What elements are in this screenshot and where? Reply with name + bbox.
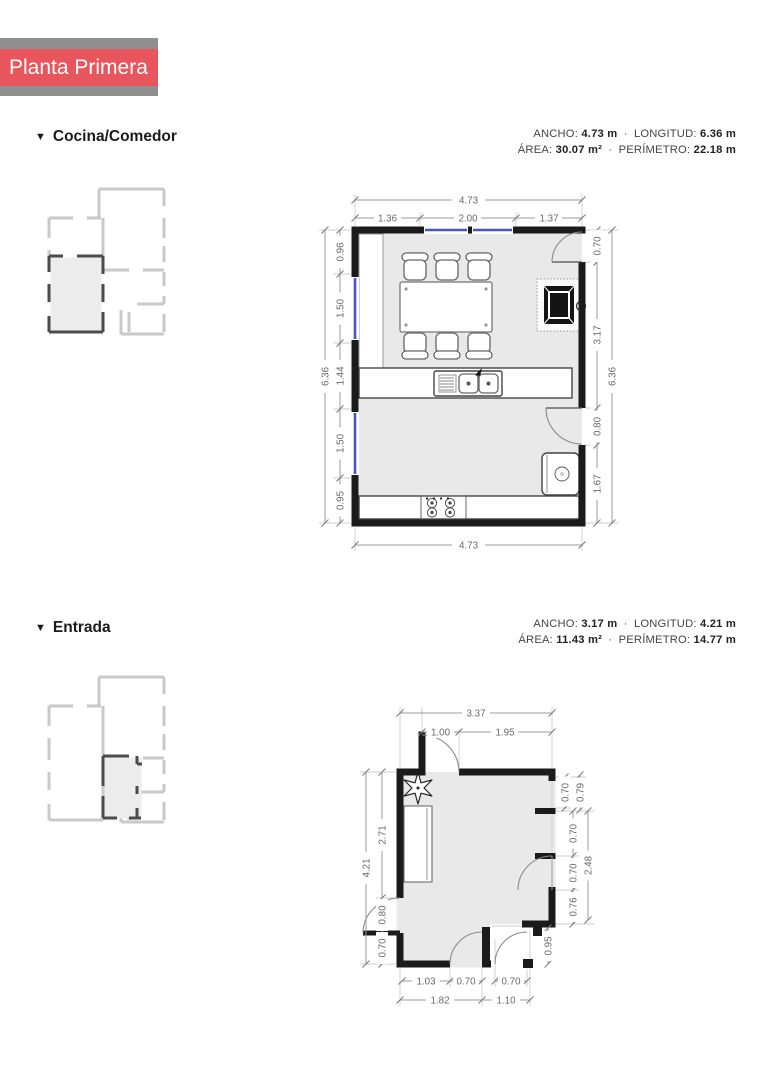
banner-top-edge xyxy=(0,38,158,49)
floor-plan-page: Planta Primera ▼Cocina/Comedor ANCHO: 4.… xyxy=(0,0,762,1080)
dim-label: 0.76 xyxy=(569,897,580,917)
dim-label: 3.17 xyxy=(593,325,604,344)
dim-label: 0.95 xyxy=(544,936,555,956)
dot-separator: · xyxy=(624,618,628,630)
room-stats-cocina: ANCHO: 4.73 m · LONGITUD: 6.36 m ÁREA: 3… xyxy=(518,127,736,158)
dim-label: 1.50 xyxy=(336,298,347,318)
left-counter xyxy=(359,234,383,368)
dot-separator: · xyxy=(608,144,612,156)
fireplace-stove xyxy=(537,279,586,331)
area-label: ÁREA: xyxy=(518,144,553,156)
door-bottom-right xyxy=(495,932,533,968)
dim-label: 0.70 xyxy=(569,863,580,883)
cocina-floor-plan: 4.73 1.36 2.00 1.37 6.36 0.96 1.50 1.44 … xyxy=(318,185,628,565)
overview-thumbnail-cocina xyxy=(33,180,173,350)
longitud-value: 6.36 m xyxy=(700,128,736,140)
dim-label: 4.21 xyxy=(362,858,373,877)
dim-label: 1.44 xyxy=(336,366,347,386)
perimetro-label: PERÍMETRO: xyxy=(619,144,691,156)
ancho-label: ANCHO: xyxy=(533,618,578,630)
area-value: 11.43 m² xyxy=(556,634,602,646)
dim-label: 0.79 xyxy=(576,783,587,802)
perimetro-label: PERÍMETRO: xyxy=(619,634,691,646)
dim-label: 0.70 xyxy=(593,236,604,256)
ancho-value: 3.17 m xyxy=(581,618,617,630)
section-header-cocina[interactable]: ▼Cocina/Comedor xyxy=(35,128,177,146)
dim-label: 1.36 xyxy=(378,214,398,225)
floor-banner: Planta Primera xyxy=(0,38,158,96)
dot-separator: · xyxy=(608,634,612,646)
collapse-triangle-icon[interactable]: ▼ xyxy=(35,622,46,634)
section-title-cocina: Cocina/Comedor xyxy=(53,128,177,145)
dim-label: 1.95 xyxy=(495,728,515,739)
longitud-value: 4.21 m xyxy=(700,618,736,630)
dim-label: 1.00 xyxy=(431,728,451,739)
room-stats-entrada: ANCHO: 3.17 m · LONGITUD: 4.21 m ÁREA: 1… xyxy=(518,617,736,648)
banner-title: Planta Primera xyxy=(0,49,158,86)
dim-label: 0.70 xyxy=(561,782,572,802)
stats-line-2: ÁREA: 30.07 m² · PERÍMETRO: 22.18 m xyxy=(518,143,736,159)
thumb-highlight-room-fill xyxy=(51,258,102,331)
closet xyxy=(404,806,432,882)
dot-separator: · xyxy=(624,128,628,140)
entrada-floor-plan: 3.37 1.00 1.95 2.71 0.80 0.70 4.21 0.70 … xyxy=(330,685,630,1025)
ancho-label: ANCHO: xyxy=(533,128,578,140)
bottom-right-jamb xyxy=(533,924,542,936)
dim-label: 0.80 xyxy=(378,905,389,925)
stats-line-1: ANCHO: 3.17 m · LONGITUD: 4.21 m xyxy=(518,617,736,633)
dim-label: 1.67 xyxy=(593,474,604,493)
dim-label: 4.73 xyxy=(459,196,479,207)
dim-label: 2.71 xyxy=(378,825,389,844)
dining-table xyxy=(400,282,492,332)
dim-label: 4.73 xyxy=(459,541,479,552)
entry-door-arc xyxy=(422,735,459,772)
dim-label: 0.70 xyxy=(378,938,389,958)
dim-label: 0.95 xyxy=(336,490,347,510)
perimetro-value: 22.18 m xyxy=(694,144,736,156)
longitud-label: LONGITUD: xyxy=(634,618,697,630)
area-value: 30.07 m² xyxy=(556,144,602,156)
dim-label: 2.00 xyxy=(458,214,478,225)
bottom-counter xyxy=(359,496,579,519)
dim-label: 1.50 xyxy=(336,433,347,453)
dim-label: 2.48 xyxy=(584,855,595,875)
area-label: ÁREA: xyxy=(518,634,553,646)
stats-line-2: ÁREA: 11.43 m² · PERÍMETRO: 14.77 m xyxy=(518,633,736,649)
ancho-value: 4.73 m xyxy=(581,128,617,140)
collapse-triangle-icon[interactable]: ▼ xyxy=(35,131,46,143)
dim-label: 0.70 xyxy=(456,977,476,988)
dim-label: 1.03 xyxy=(416,977,436,988)
dim-label: 0.80 xyxy=(593,416,604,436)
banner-bottom-edge xyxy=(0,86,158,96)
section-header-entrada[interactable]: ▼Entrada xyxy=(35,619,111,637)
overview-thumbnail-entrada xyxy=(33,668,173,838)
double-sink xyxy=(434,368,502,396)
dim-label: 0.96 xyxy=(336,242,347,262)
dim-label: 6.36 xyxy=(321,366,332,386)
dim-label: 0.70 xyxy=(501,977,521,988)
dim-label: 1.82 xyxy=(430,996,449,1007)
dim-label: 6.36 xyxy=(608,366,619,386)
perimetro-value: 14.77 m xyxy=(694,634,736,646)
longitud-label: LONGITUD: xyxy=(634,128,697,140)
stats-line-1: ANCHO: 4.73 m · LONGITUD: 6.36 m xyxy=(518,127,736,143)
dim-label: 3.37 xyxy=(466,709,485,720)
dim-label: 0.70 xyxy=(569,823,580,843)
section-title-entrada: Entrada xyxy=(53,619,111,636)
dim-label: 1.37 xyxy=(539,214,558,225)
dim-label: 1.10 xyxy=(496,996,516,1007)
washing-machine xyxy=(542,453,579,495)
kitchen-island xyxy=(359,368,572,398)
